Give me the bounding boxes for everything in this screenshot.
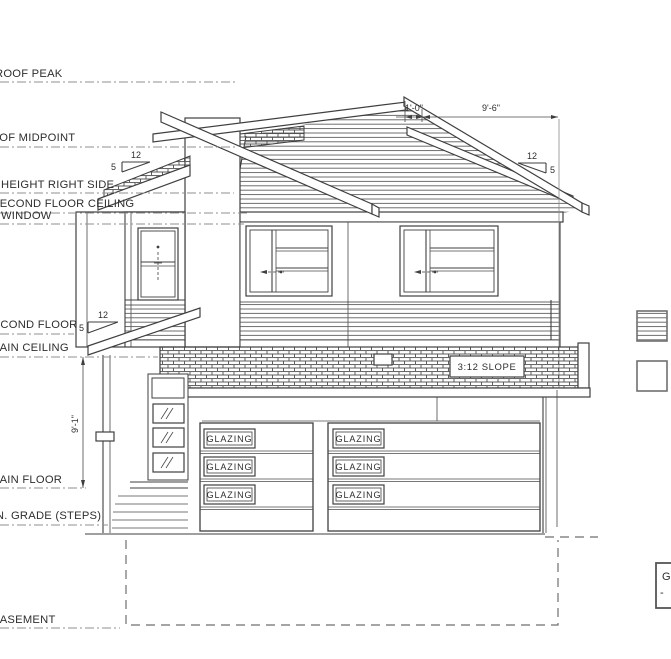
second-floor-wall — [240, 222, 560, 347]
label-min-grade: MIN. GRADE (STEPS) — [0, 510, 101, 522]
main-floor-height-value: 9'-1" — [70, 415, 80, 433]
second-floor-siding-band — [240, 302, 560, 340]
label-roof-midpoint: ROOF MIDPOINT — [0, 132, 75, 144]
entry-window-1 — [153, 404, 184, 423]
label-height-right-side: HEIGHT RIGHT SIDE — [1, 179, 114, 191]
garage-door-left: GLAZING GLAZING GLAZING — [200, 423, 313, 531]
entry-window-3 — [153, 453, 184, 472]
main-floor-height-dimension: 9'-1" — [70, 357, 85, 488]
house-front-elevation-svg: 1'-0" 9'-6" 12 5 12 5 12 5 3:12 SLOP — [0, 0, 671, 659]
label-main-floor: MAIN FLOOR — [0, 474, 62, 486]
slope-rise: 5 — [79, 323, 84, 333]
garage-door-right: GLAZING GLAZING GLAZING — [328, 423, 540, 531]
glazing-label: GLAZING — [207, 434, 253, 444]
title-block-box — [656, 563, 671, 608]
post-trim — [96, 432, 114, 441]
glazing-panel: GLAZING — [333, 457, 384, 476]
glazing-panel: GLAZING — [333, 429, 384, 448]
label-roof-peak: ROOF PEAK — [0, 68, 63, 80]
glazing-panel: GLAZING — [204, 457, 255, 476]
title-block-text-2: - — [660, 587, 664, 599]
entry-steps — [112, 482, 188, 528]
parapet-fascia — [160, 388, 590, 397]
entry-window-2 — [153, 428, 184, 447]
second-floor-window-right — [400, 226, 498, 296]
elevation-drawing-sheet: 1'-0" 9'-6" 12 5 12 5 12 5 3:12 SLOP — [0, 0, 671, 659]
title-block-partial: G - — [656, 563, 671, 608]
glazing-label: GLAZING — [336, 462, 382, 472]
entry-panel — [152, 378, 184, 398]
basement-outline — [126, 540, 558, 625]
legend-plain-swatch — [637, 361, 667, 391]
roof-band-slope-label: 3:12 SLOPE — [458, 362, 517, 373]
garage-parapet-band: 3:12 SLOPE — [160, 343, 590, 397]
glazing-label: GLAZING — [336, 434, 382, 444]
glazing-label: GLAZING — [207, 462, 253, 472]
legend-siding-swatch — [637, 311, 667, 341]
glazing-panel: GLAZING — [333, 485, 384, 504]
right-rake-beam-end — [582, 203, 589, 215]
grade-and-basement — [85, 534, 598, 625]
label-main-ceiling: MAIN CEILING — [0, 342, 69, 354]
slope-run: 12 — [131, 150, 141, 160]
entry-sidelite-column — [148, 374, 188, 480]
garage: GLAZING GLAZING GLAZING — [200, 390, 557, 533]
label-basement: BASEMENT — [0, 614, 56, 626]
glazing-panel: GLAZING — [204, 429, 255, 448]
second-floor-window-middle — [246, 226, 332, 296]
slope-rise: 5 — [550, 165, 555, 175]
roof-vent — [374, 354, 392, 365]
label-second-floor: SECOND FLOOR — [0, 319, 78, 331]
slope-run: 12 — [98, 310, 108, 320]
title-block-text-1: G — [662, 571, 671, 583]
label-window: WINDOW — [1, 210, 52, 222]
material-legend — [637, 311, 667, 391]
ridge-offset-dimension: 1'-0" — [405, 103, 423, 113]
slope-indicator-left-roof: 12 5 — [111, 150, 150, 172]
slope-run: 12 — [527, 151, 537, 161]
glazing-label: GLAZING — [336, 490, 382, 500]
bay-window — [138, 228, 178, 300]
glazing-panel: GLAZING — [204, 485, 255, 504]
roof-span-dimension: 9'-6" — [482, 103, 500, 113]
parapet-end-cap — [578, 343, 589, 388]
glazing-label: GLAZING — [207, 490, 253, 500]
label-second-floor-ceiling: SECOND FLOOR CEILING — [0, 198, 134, 210]
slope-rise: 5 — [111, 162, 116, 172]
